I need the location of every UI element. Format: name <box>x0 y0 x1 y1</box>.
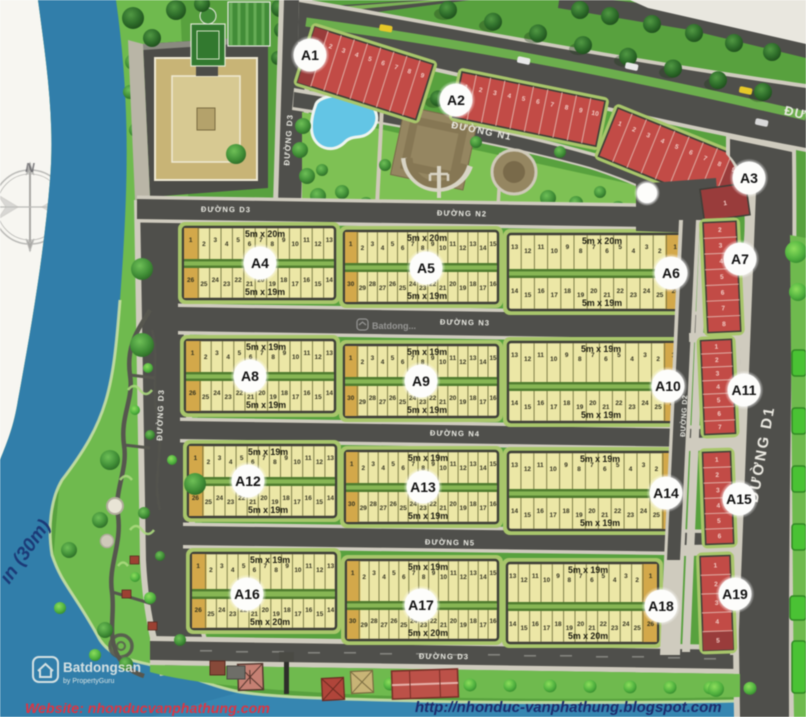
svg-text:24: 24 <box>212 277 220 284</box>
svg-text:25: 25 <box>653 512 661 519</box>
svg-text:20: 20 <box>260 495 268 502</box>
svg-text:5: 5 <box>717 518 721 525</box>
svg-text:12: 12 <box>316 567 324 574</box>
svg-text:26: 26 <box>195 607 203 614</box>
svg-text:5m x 19m: 5m x 19m <box>248 505 288 515</box>
svg-text:19: 19 <box>460 622 468 629</box>
svg-text:13: 13 <box>511 462 519 469</box>
svg-text:22: 22 <box>615 400 623 407</box>
svg-text:13: 13 <box>469 355 477 362</box>
svg-text:1: 1 <box>351 570 355 577</box>
svg-text:22: 22 <box>235 277 243 284</box>
svg-text:A16: A16 <box>234 586 260 602</box>
svg-text:27: 27 <box>379 399 387 406</box>
svg-text:3: 3 <box>643 352 647 359</box>
svg-text:1: 1 <box>191 350 195 357</box>
svg-text:18: 18 <box>469 281 477 288</box>
svg-text:6: 6 <box>721 290 725 297</box>
svg-text:4: 4 <box>226 354 230 361</box>
svg-text:4: 4 <box>716 384 720 391</box>
svg-text:1: 1 <box>194 455 198 462</box>
svg-text:2: 2 <box>202 241 206 248</box>
svg-text:22: 22 <box>614 508 622 515</box>
svg-text:4: 4 <box>716 503 720 510</box>
svg-text:8: 8 <box>722 321 726 328</box>
svg-text:25: 25 <box>634 625 642 632</box>
svg-text:13: 13 <box>326 237 334 244</box>
svg-text:4: 4 <box>382 574 386 581</box>
svg-text:6: 6 <box>603 466 607 473</box>
svg-text:3: 3 <box>371 355 375 362</box>
svg-text:2: 2 <box>715 357 719 364</box>
svg-text:25: 25 <box>656 292 664 299</box>
svg-text:30: 30 <box>347 281 355 288</box>
svg-text:3: 3 <box>372 570 376 577</box>
svg-text:6: 6 <box>604 356 608 363</box>
svg-text:3: 3 <box>719 242 723 249</box>
svg-text:ĐƯỜNG N3: ĐƯỜNG N3 <box>440 318 490 328</box>
svg-text:5: 5 <box>716 637 720 644</box>
svg-text:12: 12 <box>524 466 532 473</box>
svg-text:15: 15 <box>524 292 532 299</box>
svg-text:23: 23 <box>229 611 237 618</box>
svg-text:1: 1 <box>714 344 718 351</box>
svg-text:11: 11 <box>305 563 312 570</box>
svg-text:20: 20 <box>577 621 585 628</box>
svg-text:24: 24 <box>213 390 221 397</box>
svg-text:10: 10 <box>439 359 447 366</box>
svg-text:13: 13 <box>470 570 478 577</box>
svg-text:10: 10 <box>292 241 300 248</box>
svg-text:15: 15 <box>489 241 497 248</box>
svg-text:15: 15 <box>316 499 324 506</box>
svg-text:5: 5 <box>236 237 240 244</box>
svg-text:12: 12 <box>460 465 468 472</box>
svg-text:A11: A11 <box>732 382 757 398</box>
svg-text:11: 11 <box>449 355 456 362</box>
svg-text:Batdongsan: Batdongsan <box>63 660 141 675</box>
svg-text:18: 18 <box>281 390 289 397</box>
svg-text:22: 22 <box>617 288 625 295</box>
svg-text:5m x 20m: 5m x 20m <box>582 236 622 246</box>
svg-text:10: 10 <box>439 245 447 252</box>
svg-text:5m x 19m: 5m x 19m <box>407 291 447 301</box>
svg-text:2: 2 <box>656 356 660 363</box>
svg-text:4: 4 <box>630 356 634 363</box>
svg-text:by PropertyGuru: by PropertyGuru <box>63 678 114 685</box>
svg-text:13: 13 <box>327 563 335 570</box>
svg-text:5m x 19m: 5m x 19m <box>250 555 290 565</box>
svg-text:2: 2 <box>209 567 213 574</box>
svg-text:4: 4 <box>231 567 235 574</box>
svg-text:11: 11 <box>538 244 545 251</box>
svg-text:26: 26 <box>390 618 398 625</box>
svg-text:24: 24 <box>640 508 648 515</box>
svg-text:19: 19 <box>459 399 467 406</box>
svg-text:25: 25 <box>400 622 408 629</box>
svg-text:1: 1 <box>673 244 677 251</box>
svg-text:16: 16 <box>303 390 311 397</box>
svg-text:12: 12 <box>460 574 468 581</box>
svg-text:Batdong...: Batdong... <box>372 321 416 331</box>
svg-text:4: 4 <box>613 577 617 584</box>
svg-text:15: 15 <box>489 461 497 468</box>
svg-text:10: 10 <box>551 248 559 255</box>
svg-text:5m x 19m: 5m x 19m <box>568 565 608 575</box>
svg-text:12: 12 <box>315 354 323 361</box>
svg-text:Website: nhonducvanphathung.co: Website: nhonducvanphathung.com <box>25 701 270 717</box>
svg-text:2: 2 <box>718 227 722 234</box>
svg-text:3: 3 <box>624 573 628 580</box>
svg-text:23: 23 <box>223 281 231 288</box>
svg-text:14: 14 <box>509 621 517 628</box>
svg-text:15: 15 <box>489 570 497 577</box>
svg-text:3: 3 <box>716 487 720 494</box>
svg-text:4: 4 <box>381 359 385 366</box>
svg-text:A13: A13 <box>410 479 436 495</box>
svg-text:13: 13 <box>469 461 477 468</box>
svg-text:26: 26 <box>192 495 200 502</box>
svg-text:20: 20 <box>450 501 458 508</box>
svg-text:17: 17 <box>294 611 302 618</box>
svg-text:18: 18 <box>563 400 571 407</box>
svg-text:17: 17 <box>550 404 558 411</box>
svg-text:11: 11 <box>303 237 310 244</box>
svg-text:27: 27 <box>380 622 388 629</box>
svg-text:26: 26 <box>187 277 195 284</box>
svg-text:11: 11 <box>305 455 312 462</box>
svg-text:5m x 19m: 5m x 19m <box>408 562 448 572</box>
svg-text:25: 25 <box>205 499 213 506</box>
svg-text:29: 29 <box>359 399 367 406</box>
svg-text:28: 28 <box>369 395 377 402</box>
svg-text:14: 14 <box>327 607 335 614</box>
svg-text:29: 29 <box>360 505 368 512</box>
svg-text:9: 9 <box>564 462 568 469</box>
svg-text:A9: A9 <box>412 373 430 389</box>
svg-text:13: 13 <box>326 350 334 357</box>
svg-text:15: 15 <box>316 611 324 618</box>
svg-text:15: 15 <box>314 281 322 288</box>
svg-text:27: 27 <box>380 505 388 512</box>
svg-text:ĐƯỜNG D3: ĐƯỜNG D3 <box>201 205 251 214</box>
svg-text:http://nhonduc-vanphathung.blo: http://nhonduc-vanphathung.blogspot.com <box>415 699 722 716</box>
svg-text:17: 17 <box>479 285 487 292</box>
svg-text:3: 3 <box>645 244 649 251</box>
svg-text:28: 28 <box>370 501 378 508</box>
svg-text:5m x 19m: 5m x 19m <box>582 298 622 308</box>
svg-text:4: 4 <box>381 245 385 252</box>
svg-text:A17: A17 <box>408 597 434 613</box>
svg-text:14: 14 <box>326 277 334 284</box>
svg-text:4: 4 <box>715 619 719 626</box>
svg-text:18: 18 <box>554 621 562 628</box>
svg-text:14: 14 <box>480 574 488 581</box>
svg-text:16: 16 <box>303 277 311 284</box>
svg-text:6: 6 <box>401 359 405 366</box>
svg-text:5m x 19m: 5m x 19m <box>408 511 448 521</box>
svg-text:10: 10 <box>294 459 302 466</box>
svg-text:15: 15 <box>489 355 497 362</box>
svg-text:16: 16 <box>537 400 545 407</box>
svg-text:17: 17 <box>292 281 300 288</box>
svg-text:20: 20 <box>589 400 597 407</box>
svg-text:5m x 19m: 5m x 19m <box>245 287 285 297</box>
svg-text:10: 10 <box>440 465 448 472</box>
svg-text:14: 14 <box>479 359 487 366</box>
svg-text:1: 1 <box>649 573 653 580</box>
svg-text:9: 9 <box>565 352 569 359</box>
svg-text:15: 15 <box>524 512 532 519</box>
svg-text:17: 17 <box>479 505 487 512</box>
svg-text:15: 15 <box>315 394 323 401</box>
svg-text:16: 16 <box>537 288 545 295</box>
svg-text:17: 17 <box>294 499 302 506</box>
svg-text:5: 5 <box>717 397 721 404</box>
svg-text:2: 2 <box>362 574 366 581</box>
svg-text:28: 28 <box>369 281 377 288</box>
svg-text:5m x 19m: 5m x 19m <box>407 347 447 357</box>
svg-text:20: 20 <box>590 288 598 295</box>
svg-text:A3: A3 <box>740 170 758 186</box>
svg-text:A5: A5 <box>417 260 435 276</box>
svg-text:2: 2 <box>207 459 211 466</box>
svg-text:1: 1 <box>196 563 200 570</box>
svg-text:ĐƯỜNG N2: ĐƯỜNG N2 <box>437 209 487 219</box>
svg-text:3: 3 <box>371 241 375 248</box>
svg-text:17: 17 <box>551 292 559 299</box>
svg-text:18: 18 <box>564 288 572 295</box>
svg-text:A6: A6 <box>662 265 680 281</box>
svg-text:10: 10 <box>543 577 551 584</box>
svg-text:10: 10 <box>550 466 558 473</box>
svg-text:16: 16 <box>489 501 497 508</box>
svg-text:14: 14 <box>327 495 335 502</box>
svg-text:23: 23 <box>225 394 233 401</box>
svg-text:6: 6 <box>401 465 405 472</box>
svg-text:16: 16 <box>489 618 497 625</box>
svg-text:8: 8 <box>579 248 583 255</box>
svg-text:17: 17 <box>550 512 558 519</box>
svg-text:5m x 19m: 5m x 19m <box>408 453 448 463</box>
svg-text:13: 13 <box>327 455 335 462</box>
svg-text:5m x 19m: 5m x 19m <box>580 518 620 528</box>
svg-text:18: 18 <box>469 501 477 508</box>
svg-text:9: 9 <box>556 573 560 580</box>
svg-text:12: 12 <box>314 241 322 248</box>
svg-text:16: 16 <box>532 621 540 628</box>
svg-text:20: 20 <box>449 281 457 288</box>
svg-text:25: 25 <box>399 285 407 292</box>
svg-text:14: 14 <box>511 288 519 295</box>
svg-text:5: 5 <box>720 274 724 281</box>
svg-text:26: 26 <box>189 390 197 397</box>
svg-text:4: 4 <box>225 241 229 248</box>
svg-text:7: 7 <box>718 424 722 431</box>
svg-text:2: 2 <box>362 465 366 472</box>
svg-text:A15: A15 <box>726 491 752 507</box>
svg-text:5m x 19m: 5m x 19m <box>246 400 286 410</box>
svg-text:5: 5 <box>392 570 396 577</box>
svg-text:1: 1 <box>713 562 717 569</box>
svg-text:5m x 20m: 5m x 20m <box>568 631 608 641</box>
svg-text:27: 27 <box>379 285 387 292</box>
svg-text:2: 2 <box>204 354 208 361</box>
svg-text:A4: A4 <box>251 255 269 271</box>
svg-text:2: 2 <box>361 359 365 366</box>
svg-text:ĐƯỜNG D3: ĐƯỜNG D3 <box>419 652 469 661</box>
svg-text:5: 5 <box>240 455 244 462</box>
svg-text:23: 23 <box>630 292 638 299</box>
svg-text:5m x 19m: 5m x 19m <box>580 454 620 464</box>
svg-text:8: 8 <box>568 577 572 584</box>
svg-text:6: 6 <box>401 245 405 252</box>
svg-text:18: 18 <box>283 495 291 502</box>
svg-text:20: 20 <box>588 508 596 515</box>
svg-text:6: 6 <box>717 411 721 418</box>
svg-text:4: 4 <box>632 248 636 255</box>
svg-text:A12: A12 <box>235 473 261 489</box>
svg-text:25: 25 <box>202 394 210 401</box>
svg-text:2: 2 <box>655 466 659 473</box>
svg-text:9: 9 <box>566 244 570 251</box>
svg-text:8: 8 <box>274 567 278 574</box>
svg-text:24: 24 <box>641 400 649 407</box>
svg-text:18: 18 <box>284 607 292 614</box>
svg-text:16: 16 <box>305 495 313 502</box>
svg-text:19: 19 <box>459 285 467 292</box>
svg-text:3: 3 <box>371 461 375 468</box>
svg-text:1: 1 <box>715 457 719 464</box>
svg-text:30: 30 <box>347 395 355 402</box>
svg-text:5m x 19m: 5m x 19m <box>581 410 621 420</box>
svg-text:3: 3 <box>215 350 219 357</box>
svg-text:12: 12 <box>459 245 467 252</box>
svg-text:25: 25 <box>655 404 663 411</box>
svg-text:A18: A18 <box>648 598 674 614</box>
svg-text:6: 6 <box>605 248 609 255</box>
svg-text:5: 5 <box>391 355 395 362</box>
svg-text:5: 5 <box>238 350 242 357</box>
svg-text:12: 12 <box>316 459 324 466</box>
svg-text:5m x 19m: 5m x 19m <box>248 447 288 457</box>
svg-text:17: 17 <box>480 622 488 629</box>
svg-text:19: 19 <box>460 505 468 512</box>
svg-text:29: 29 <box>359 285 367 292</box>
svg-text:18: 18 <box>469 395 477 402</box>
svg-text:3: 3 <box>214 237 218 244</box>
svg-text:25: 25 <box>399 399 407 406</box>
svg-text:3: 3 <box>642 462 646 469</box>
svg-text:N: N <box>25 160 35 175</box>
svg-text:13: 13 <box>469 241 477 248</box>
svg-text:14: 14 <box>511 508 519 515</box>
svg-text:23: 23 <box>628 404 636 411</box>
svg-text:4: 4 <box>381 465 385 472</box>
svg-text:7: 7 <box>721 305 725 312</box>
svg-text:13: 13 <box>511 352 519 359</box>
svg-text:10: 10 <box>294 567 302 574</box>
svg-text:14: 14 <box>326 390 334 397</box>
svg-text:17: 17 <box>543 625 551 632</box>
svg-text:11: 11 <box>304 350 311 357</box>
svg-text:5: 5 <box>242 563 246 570</box>
svg-text:5m x 20m: 5m x 20m <box>245 229 285 239</box>
svg-text:17: 17 <box>292 394 300 401</box>
svg-text:2: 2 <box>658 248 662 255</box>
svg-text:30: 30 <box>348 501 356 508</box>
svg-text:2: 2 <box>361 245 365 252</box>
svg-text:12: 12 <box>524 248 532 255</box>
svg-text:20: 20 <box>262 607 270 614</box>
svg-text:A2: A2 <box>447 92 465 108</box>
svg-text:5: 5 <box>391 241 395 248</box>
svg-text:13: 13 <box>511 244 519 251</box>
svg-text:1: 1 <box>350 461 354 468</box>
svg-text:5m x 20m: 5m x 20m <box>408 628 448 638</box>
svg-text:26: 26 <box>389 395 397 402</box>
svg-text:4: 4 <box>629 466 633 473</box>
svg-text:16: 16 <box>537 508 545 515</box>
svg-text:6: 6 <box>402 574 406 581</box>
svg-text:11: 11 <box>449 241 456 248</box>
svg-text:6: 6 <box>590 577 594 584</box>
svg-text:11: 11 <box>537 352 544 359</box>
svg-text:5m x 20m: 5m x 20m <box>250 617 290 627</box>
svg-text:23: 23 <box>627 512 635 519</box>
svg-text:8: 8 <box>422 574 426 581</box>
svg-text:3: 3 <box>716 370 720 377</box>
svg-text:16: 16 <box>489 281 497 288</box>
svg-text:18: 18 <box>562 508 570 515</box>
svg-text:2: 2 <box>635 577 639 584</box>
svg-text:5: 5 <box>391 461 395 468</box>
svg-text:8: 8 <box>273 459 277 466</box>
svg-text:10: 10 <box>550 356 558 363</box>
svg-text:5m x 19m: 5m x 19m <box>246 342 286 352</box>
svg-text:A19: A19 <box>722 586 748 602</box>
svg-text:A7: A7 <box>731 251 749 267</box>
svg-text:8: 8 <box>271 241 275 248</box>
svg-text:10: 10 <box>292 354 300 361</box>
svg-text:24: 24 <box>622 621 630 628</box>
svg-text:23: 23 <box>227 499 235 506</box>
svg-text:A1: A1 <box>301 47 319 63</box>
svg-text:24: 24 <box>643 288 651 295</box>
svg-text:24: 24 <box>218 607 226 614</box>
svg-text:25: 25 <box>207 611 215 618</box>
svg-text:14: 14 <box>479 245 487 252</box>
svg-text:18: 18 <box>470 618 478 625</box>
svg-text:12: 12 <box>524 356 532 363</box>
svg-text:23: 23 <box>611 625 619 632</box>
svg-text:8: 8 <box>271 354 275 361</box>
svg-text:1: 1 <box>349 241 353 248</box>
svg-text:25: 25 <box>200 281 208 288</box>
svg-text:11: 11 <box>532 573 539 580</box>
svg-text:17: 17 <box>479 399 487 406</box>
svg-text:28: 28 <box>370 618 378 625</box>
svg-text:12: 12 <box>520 577 528 584</box>
svg-text:20: 20 <box>449 395 457 402</box>
svg-text:26: 26 <box>389 281 397 288</box>
svg-text:1: 1 <box>349 355 353 362</box>
svg-text:18: 18 <box>280 277 288 284</box>
svg-text:3: 3 <box>220 563 224 570</box>
svg-text:A10: A10 <box>655 378 681 394</box>
svg-text:11: 11 <box>537 462 544 469</box>
svg-text:1: 1 <box>189 237 193 244</box>
